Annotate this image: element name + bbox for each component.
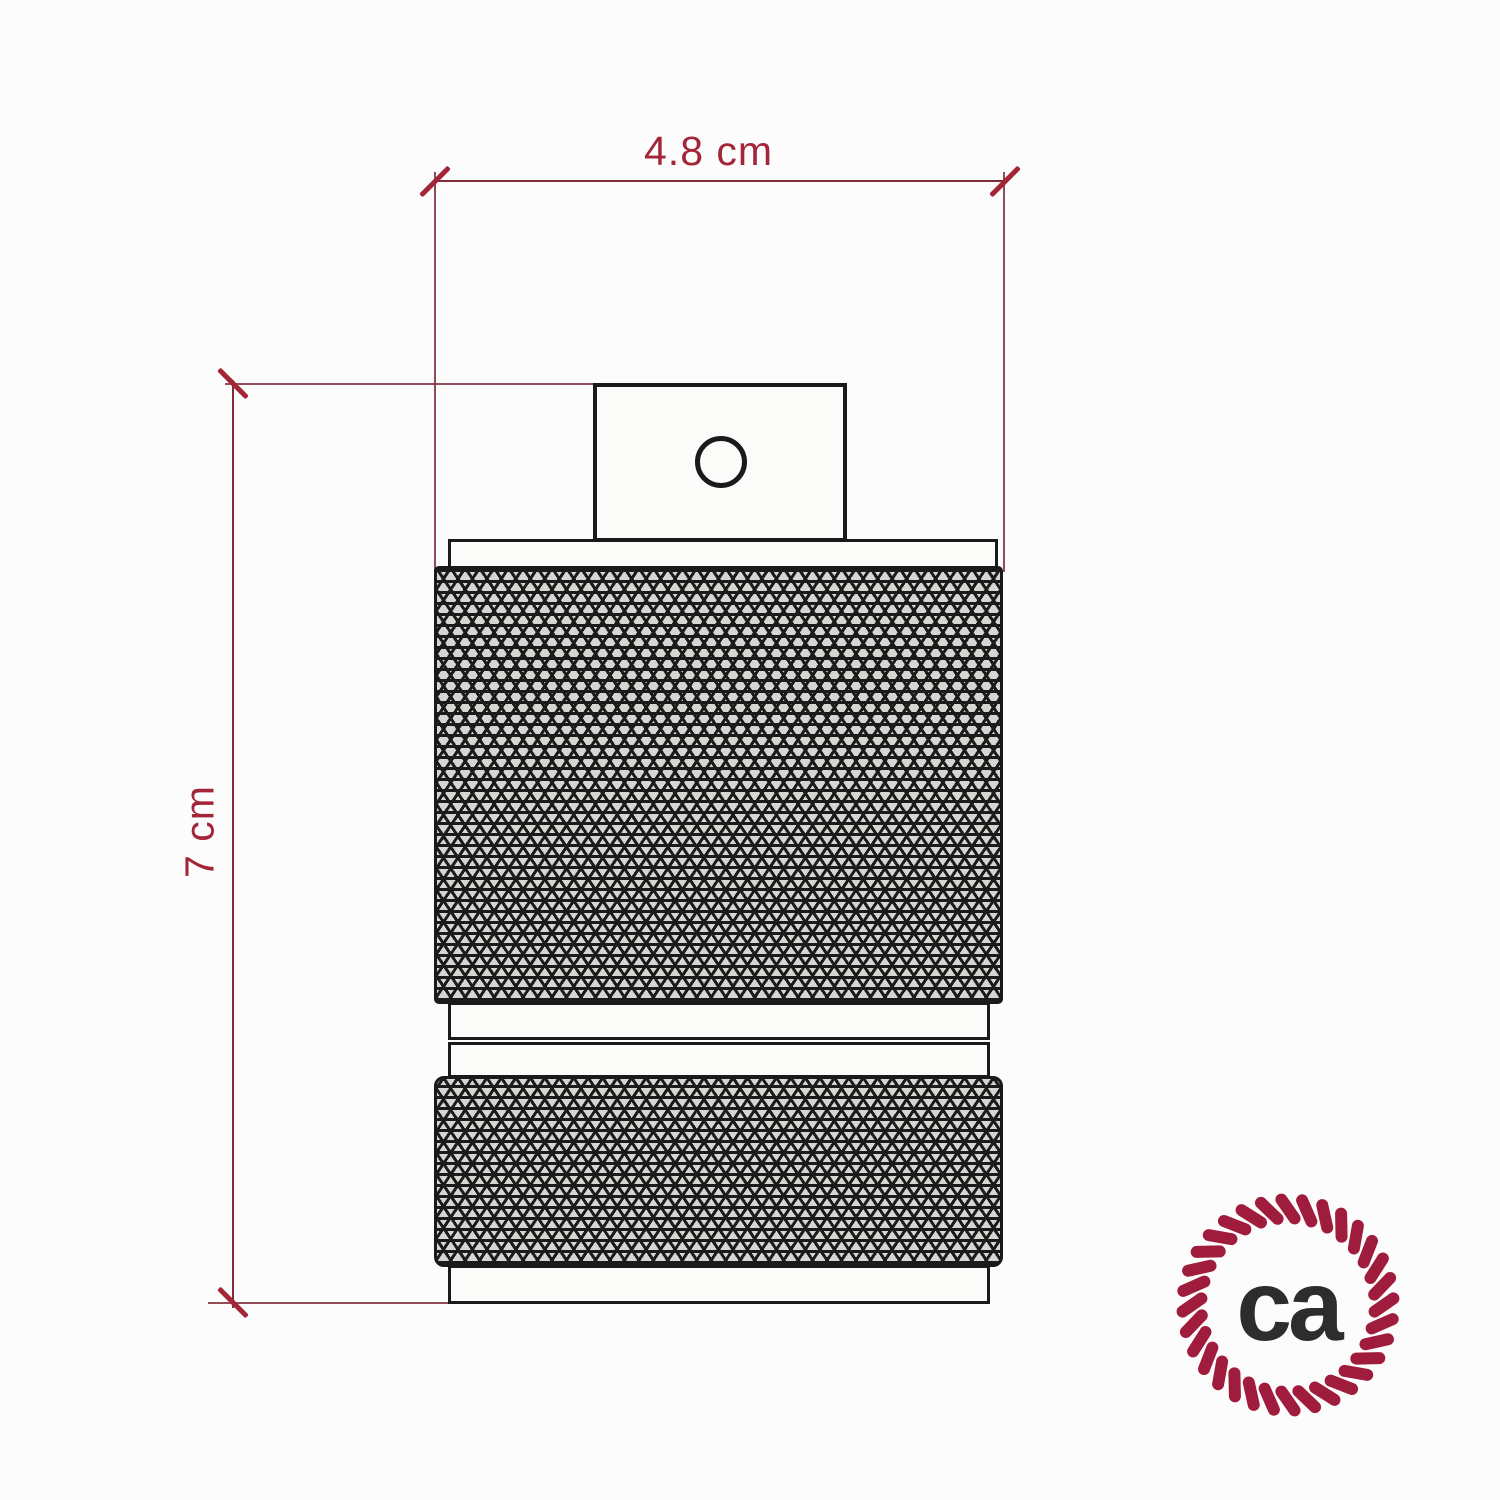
- lower-knurled-ring: [434, 1076, 1003, 1267]
- cable-clamp-hole: [695, 436, 747, 488]
- brand-logo-text: ca: [1173, 1190, 1403, 1420]
- cable-clamp-block: [593, 383, 847, 542]
- bottom-collar: [448, 1265, 990, 1304]
- width-extension-line-right: [1003, 172, 1005, 572]
- width-dimension-label: 4.8 cm: [644, 128, 773, 175]
- smooth-band-lower: [448, 1042, 990, 1078]
- brand-logo: ca: [1173, 1190, 1403, 1420]
- width-extension-line-left: [434, 172, 436, 572]
- upper-knurled-body: [434, 566, 1003, 1004]
- height-dimension-line: [232, 380, 234, 1308]
- smooth-band-upper: [448, 1002, 990, 1040]
- top-cap-plate: [448, 539, 998, 569]
- product-dimension-diagram: 4.8 cm 7 cm ca: [0, 0, 1500, 1500]
- width-dimension-line: [433, 180, 1005, 182]
- height-extension-line-top: [225, 383, 597, 385]
- height-dimension-label: 7 cm: [177, 772, 224, 892]
